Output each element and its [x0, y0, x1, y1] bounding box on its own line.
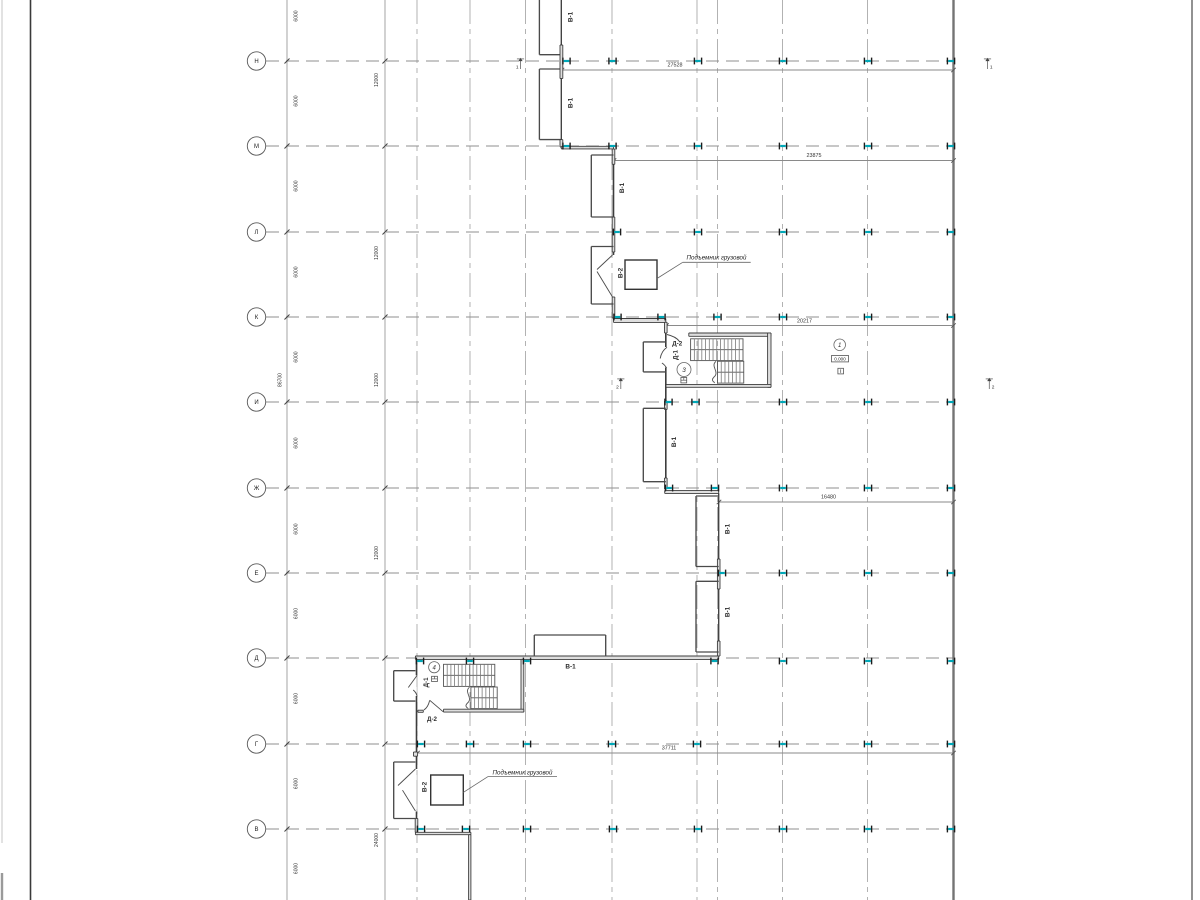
svg-text:6000: 6000	[294, 351, 300, 362]
svg-text:В-1: В-1	[725, 523, 732, 534]
svg-text:2: 2	[616, 385, 619, 391]
svg-text:И: И	[254, 400, 258, 406]
svg-text:1: 1	[516, 65, 519, 71]
svg-text:37711: 37711	[662, 746, 677, 752]
svg-text:В-1: В-1	[619, 182, 626, 193]
svg-text:6000: 6000	[294, 10, 300, 21]
svg-text:12000: 12000	[374, 546, 380, 560]
svg-text:Л: Л	[255, 230, 259, 236]
svg-text:2: 2	[992, 385, 995, 391]
svg-text:В-2: В-2	[422, 781, 429, 792]
svg-text:12000: 12000	[374, 73, 380, 87]
svg-text:86700: 86700	[278, 373, 284, 387]
svg-text:6000: 6000	[294, 608, 300, 619]
svg-text:6000: 6000	[294, 437, 300, 448]
svg-text:В-1: В-1	[725, 606, 732, 617]
svg-text:Подъемник грузовой: Подъемник грузовой	[493, 770, 553, 777]
svg-text:24000: 24000	[374, 833, 380, 847]
svg-text:27528: 27528	[668, 63, 683, 69]
svg-text:6000: 6000	[294, 863, 300, 874]
svg-text:6000: 6000	[294, 95, 300, 106]
svg-text:6000: 6000	[294, 180, 300, 191]
svg-text:Н: Н	[254, 59, 258, 65]
svg-text:В-1: В-1	[568, 97, 575, 108]
svg-text:Е: Е	[254, 571, 258, 577]
svg-text:Подъемник грузовой: Подъемник грузовой	[687, 254, 747, 261]
svg-text:Д: Д	[254, 656, 258, 662]
svg-text:12000: 12000	[374, 246, 380, 260]
svg-text:В-1: В-1	[568, 11, 575, 22]
svg-text:В-1: В-1	[565, 664, 576, 671]
svg-text:В-1: В-1	[671, 436, 678, 447]
svg-text:23875: 23875	[807, 153, 822, 159]
svg-text:0.000: 0.000	[834, 357, 846, 362]
svg-text:20217: 20217	[797, 319, 812, 325]
svg-text:Д-1: Д-1	[423, 677, 430, 687]
svg-text:1: 1	[990, 65, 993, 71]
svg-text:Д-2: Д-2	[672, 341, 682, 348]
svg-text:16480: 16480	[821, 495, 836, 501]
svg-text:6000: 6000	[294, 778, 300, 789]
svg-text:Ж: Ж	[254, 486, 260, 492]
svg-text:6000: 6000	[294, 266, 300, 277]
svg-text:В-2: В-2	[618, 267, 625, 278]
svg-text:В: В	[254, 827, 258, 833]
svg-text:К: К	[255, 315, 259, 321]
svg-text:М: М	[254, 144, 259, 150]
svg-text:Д-2: Д-2	[427, 716, 437, 723]
svg-text:3: 3	[682, 367, 686, 374]
svg-text:1: 1	[838, 343, 841, 349]
svg-text:6000: 6000	[294, 693, 300, 704]
svg-text:6000: 6000	[294, 523, 300, 534]
svg-text:Д-1: Д-1	[672, 349, 679, 359]
svg-text:12000: 12000	[374, 373, 380, 387]
